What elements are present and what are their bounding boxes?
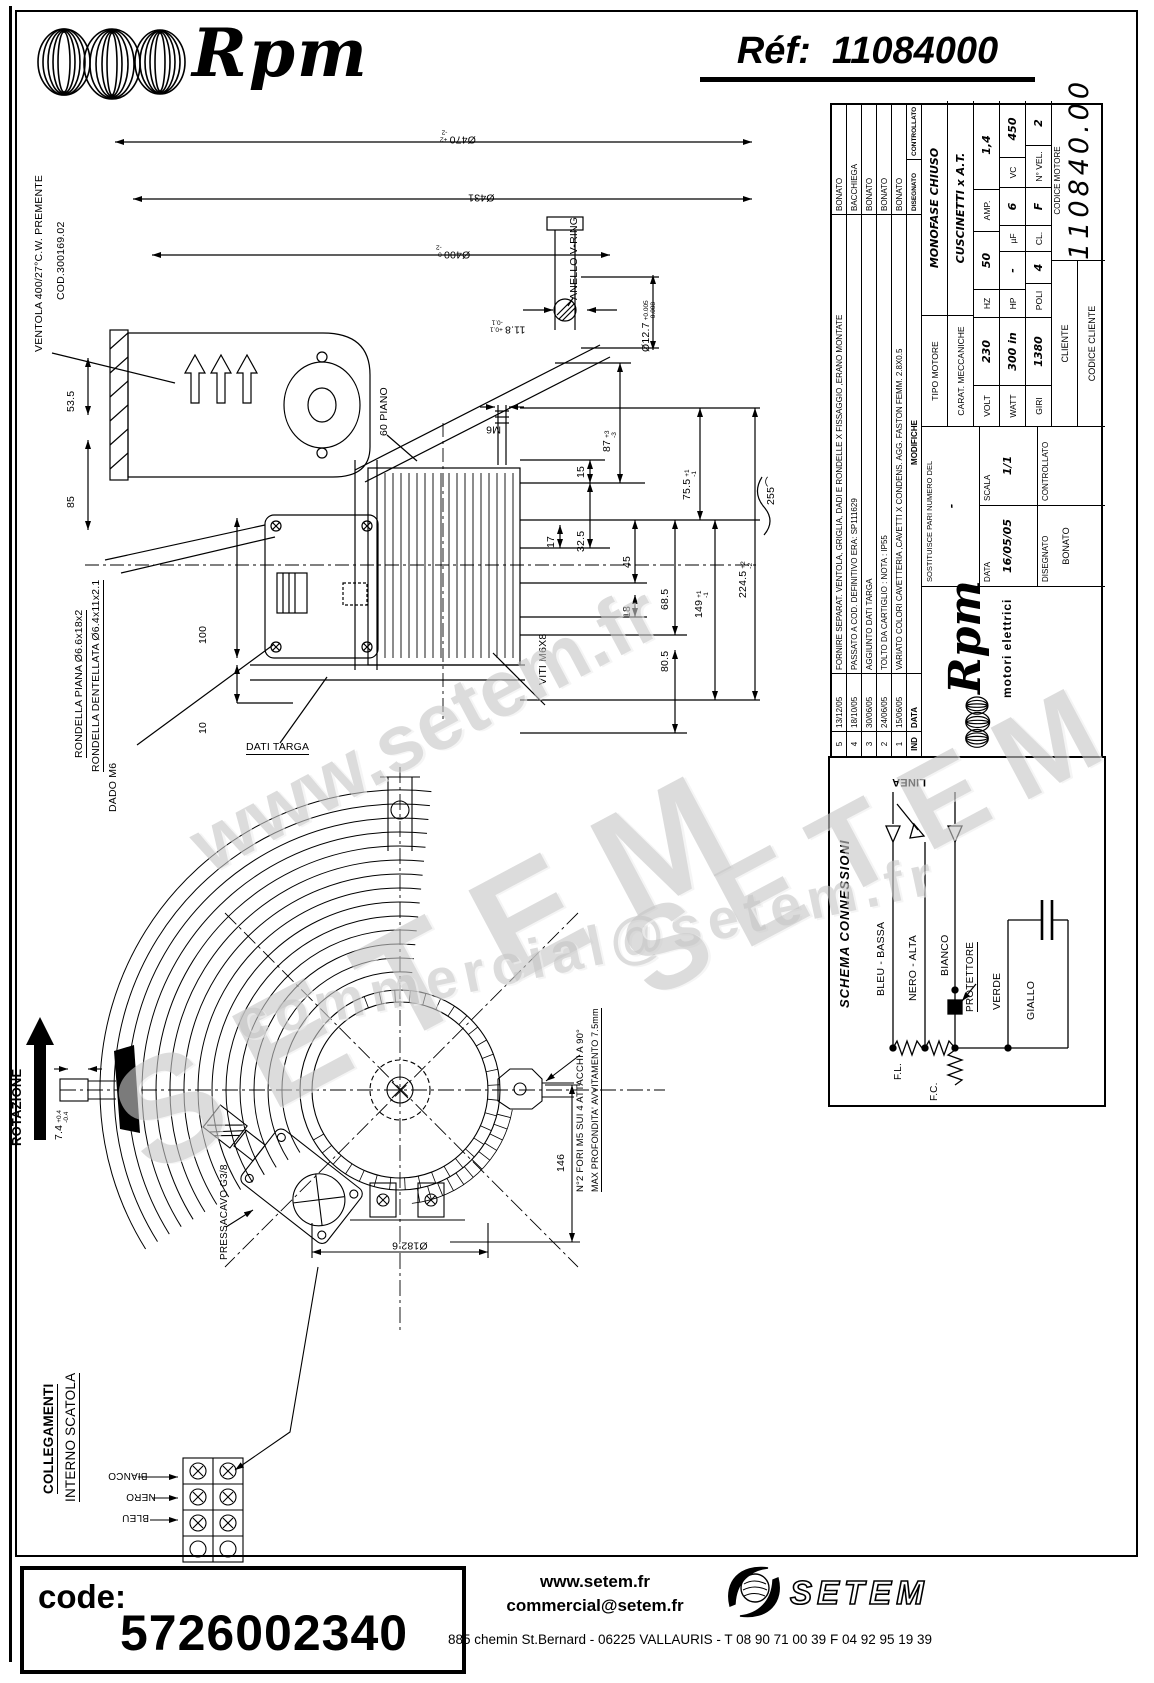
motor-data: TIPO MOTORE MONOFASE CHIUSO CARAT. MECCA… <box>922 101 1105 426</box>
reference-number: Réf: 11084000 <box>700 30 1035 82</box>
label-rondella-dentellata: RONDELLA DENTELLATA Ø6.4x11x2.1 <box>91 580 104 772</box>
revision-row: 115/06/05VARIATO COLORI CAVETTERIA ,CAVE… <box>892 105 907 756</box>
ref-label: Réf: <box>737 30 811 72</box>
setem-logo-icon <box>722 1560 786 1624</box>
rpm-coil-icon-small <box>948 696 1006 748</box>
dim-80-5: 80.5 <box>660 651 671 672</box>
dim-15: 15 <box>576 466 587 478</box>
ref-value: 11084000 <box>832 30 998 72</box>
scala-value: 1/1 <box>1001 426 1014 505</box>
footer-address: 885 chemin St.Bernard - 06225 VALLAURIS … <box>430 1632 950 1647</box>
dim-d470: Ø470+2-2 <box>440 128 476 144</box>
dim-68-5: 68.5 <box>660 589 671 610</box>
sostituisce-label: SOSTITUISCE PARI NUMERO DEL <box>922 426 937 586</box>
schema-giallo: GIALLO <box>1026 981 1037 1020</box>
schema-nero: NERO - ALTA <box>908 935 919 1001</box>
sostituisce-value: - <box>945 426 958 586</box>
footer-site: www.setem.fr <box>450 1572 740 1592</box>
code-label: code: <box>38 1578 126 1616</box>
label-pressacavo: PRESSACAVO G3/8 <box>220 1164 230 1260</box>
tipo-label: TIPO MOTORE <box>922 316 947 426</box>
dim-87: 87+3-3 <box>602 430 618 452</box>
label-rondella-piana: RONDELLA PIANA Ø6.6x18x2 <box>74 610 87 758</box>
label-rotazione: ROTAZIONE <box>10 1069 23 1146</box>
label-m6: M6 <box>486 424 501 435</box>
revision-row: 224/06/05TOLTO DA CARTIGLIO : NOTA : IP5… <box>877 105 892 756</box>
carat-label: CARAT. MECCANICHE <box>948 316 973 426</box>
dim-32-5: 32.5 <box>576 531 587 552</box>
schema-bianco: BIANCO <box>940 935 951 976</box>
scala-label: SCALA <box>980 426 995 505</box>
tipo-value: MONOFASE CHIUSO <box>922 101 947 316</box>
schema-fl: F.L. <box>894 1063 904 1080</box>
schema-connessioni-box: SCHEMA CONNESSIONI LINEA BLEU - BASSA NE… <box>828 756 1106 1107</box>
label-60-piano: 60 PIANO <box>379 387 390 436</box>
label-term-nero: NERO <box>126 1491 156 1501</box>
brand-wordmark: Rpm <box>192 14 369 92</box>
dim-75-5: 75.5+1-1 <box>682 469 698 500</box>
label-dado-m6: DADO M6 <box>108 763 119 812</box>
dim-11-8: 11.8+0.1-0.1 <box>490 318 525 334</box>
schema-wiring <box>830 758 1100 1101</box>
maker-cell: Rpm motori elettrici <box>922 586 1105 756</box>
label-dati-targa: DATI TARGA <box>246 742 309 755</box>
code-box: code: 5726002340 <box>20 1566 466 1674</box>
schema-linea: LINEA <box>892 776 926 787</box>
dim-100: 100 <box>198 626 209 644</box>
schema-protettore: PROTETTORE <box>966 942 978 1012</box>
label-max-profondita: MAX PROFONDITA' AVVITAMENTO 7.5mm <box>591 1008 602 1192</box>
rpm-coil-logo-icon <box>36 24 188 100</box>
data-label: DATA <box>980 506 995 586</box>
label-fori-m5: N°2 FORI M5 SUI 4 ATTACCHI A 90° <box>576 1029 586 1192</box>
front-view-drawing <box>20 755 780 1575</box>
maker-tagline: motori elettrici <box>1000 599 1014 698</box>
disegnato-label: DISEGNATO <box>1038 506 1053 586</box>
dim-d431: Ø431 <box>468 192 495 203</box>
code-value: 5726002340 <box>120 1604 408 1662</box>
schema-bleu: BLEU - BASSA <box>876 922 887 996</box>
dim-149: 149+1-1 <box>694 590 710 618</box>
codice-motore-value: 110840.00 <box>1064 101 1095 260</box>
controllato-label: CONTROLLATO <box>1038 426 1053 505</box>
dim-53-5: 53.5 <box>66 391 77 412</box>
label-term-bianco: BIANCO <box>108 1470 148 1480</box>
dim-10: 10 <box>198 722 209 734</box>
label-interno-scatola: INTERNO SCATOLA <box>64 1373 80 1502</box>
carat-value: CUSCINETTI x A.T. <box>948 101 973 316</box>
dim-7-4: 7.4+0.4-0.4 <box>54 1110 70 1140</box>
revision-row: 418/10/05PASSATO A COD. DEFINITIVO ERA: … <box>847 105 862 756</box>
schema-verde: VERDE <box>992 973 1003 1010</box>
dim-d182-6: Ø182.6 <box>392 1240 428 1251</box>
dim-146: 146 <box>556 1154 567 1172</box>
dim-255: 255⌒ <box>766 476 777 505</box>
dim-d400: Ø4000-2 <box>436 243 470 259</box>
cliente-label: CLIENTE <box>1052 261 1078 426</box>
maker-brand: Rpm <box>940 580 991 694</box>
footer-email: commercial@setem.fr <box>450 1596 740 1616</box>
label-collegamenti: COLLEGAMENTI <box>42 1384 58 1494</box>
schema-fc: F.C. <box>930 1082 940 1101</box>
revision-header-row: INDDATAMODIFICHEDISEGNATOCONTROLLATO <box>907 105 922 756</box>
dim-85: 85 <box>66 496 77 508</box>
dim-17: 17 <box>546 536 557 548</box>
codice-cliente-label: CODICE CLIENTE <box>1078 261 1105 426</box>
label-anello-v-ring: ANELLO V-RING <box>569 217 580 300</box>
label-ventola: VENTOLA 400/27°C.W. PREMENTE <box>34 175 45 352</box>
dim-18: 18 <box>622 606 633 618</box>
schema-title: SCHEMA CONNESSIONI <box>838 840 851 1008</box>
page-left-edge <box>9 6 12 1662</box>
label-term-bleu: BLEU <box>122 1512 149 1522</box>
cartiglio-cell: SOSTITUISCE PARI NUMERO DEL - DATA 16/05… <box>922 426 1105 586</box>
revision-row: 330/06/05AGGIUNTO DATI TARGABONATO <box>862 105 877 756</box>
data-value: 16/05/05 <box>1001 506 1014 586</box>
revision-row: 513/12/05FORNIRE SEPARAT. VENTOLA, GRIGL… <box>832 105 847 756</box>
disegnato-value: BONATO <box>1061 506 1071 586</box>
label-viti-m6x8: VITI M6X8 <box>538 634 549 685</box>
title-block: 513/12/05FORNIRE SEPARAT. VENTOLA, GRIGL… <box>830 103 1103 758</box>
technical-drawing-page: { "colors": {"ink": "#000000", "watermar… <box>0 0 1154 1683</box>
dim-d12-7: Ø12.7+0.005-0.008 <box>641 300 657 352</box>
label-cod: COD.300169.02 <box>56 222 67 300</box>
codice-motore-label: CODICE MOTORE <box>1052 101 1062 260</box>
dim-45: 45 <box>622 556 633 568</box>
dim-224-5: 224.5+2-2 <box>738 561 754 598</box>
setem-wordmark: SETEM <box>790 1574 929 1612</box>
